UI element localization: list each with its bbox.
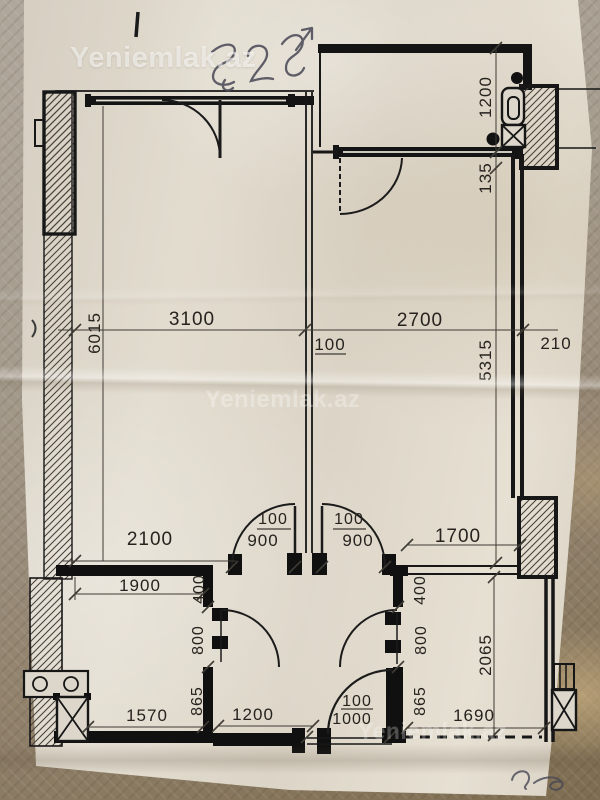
dim-right-partition-door: 800 [413,625,430,655]
dim-right-partition-top: 400 [412,575,429,605]
door-left-room-balcony [162,100,220,158]
dim-balcony-ledge: 135 [476,162,495,193]
dim-left-room-depth: 6015 [85,312,104,354]
dim-center-wall: 100 [314,335,345,354]
handwritten-note [212,28,312,90]
riser-pipe [511,72,523,84]
dim-kitchen-width-bottom: 1690 [453,706,495,725]
dim-hall-span-left: 2100 [127,529,173,550]
dim-right-partition-bottom: 865 [412,686,429,716]
dimension-labels: 3100 100 2700 210 6015 5315 1200 135 210… [85,76,572,728]
pipe-chase [554,664,574,689]
dim-left-partition-top: 400 [191,574,208,604]
right-wall [513,154,522,498]
dim-balcony-depth: 1200 [476,76,495,118]
dim-left-room-width: 3100 [169,309,215,330]
dim-bath-width-bottom: 1570 [126,706,168,725]
dim-left-partition-bottom: 865 [189,686,206,716]
door-right-room-balcony [340,158,402,214]
dim-kitchen-depth: 2065 [476,634,495,676]
interior-wall [306,92,312,553]
dim-entry-door-jamb: 100 [342,693,372,710]
dim-right-door-jamb: 100 [334,511,364,528]
dim-left-door-jamb: 100 [258,511,288,528]
dim-right-wall-thickness: 210 [540,334,571,353]
floor-plan-drawing: 3100 100 2700 210 6015 5315 1200 135 210… [0,0,600,800]
dim-right-door-width: 900 [342,531,373,550]
dim-right-room-width: 2700 [397,310,443,331]
walls-group [30,44,600,754]
floor-plan-photo: 3100 100 2700 210 6015 5315 1200 135 210… [0,0,600,800]
dim-left-door-width: 900 [247,531,278,550]
handwritten-signature [512,771,563,790]
right-top-column [521,86,557,168]
dim-left-partition-door: 800 [190,625,207,655]
tick-mark [136,12,138,37]
riser-pipe [487,133,500,146]
dim-hall-width-bottom: 1200 [232,705,274,724]
dim-hall-span-right: 1700 [435,526,481,547]
dim-entry-door-width: 1000 [332,711,372,728]
balcony-wall [318,44,532,53]
left-column [44,92,75,234]
dim-bath-width-top: 1900 [119,576,161,595]
dim-right-room-depth: 5315 [476,339,495,381]
door-bathroom [222,610,279,667]
right-mid-column [519,498,556,577]
